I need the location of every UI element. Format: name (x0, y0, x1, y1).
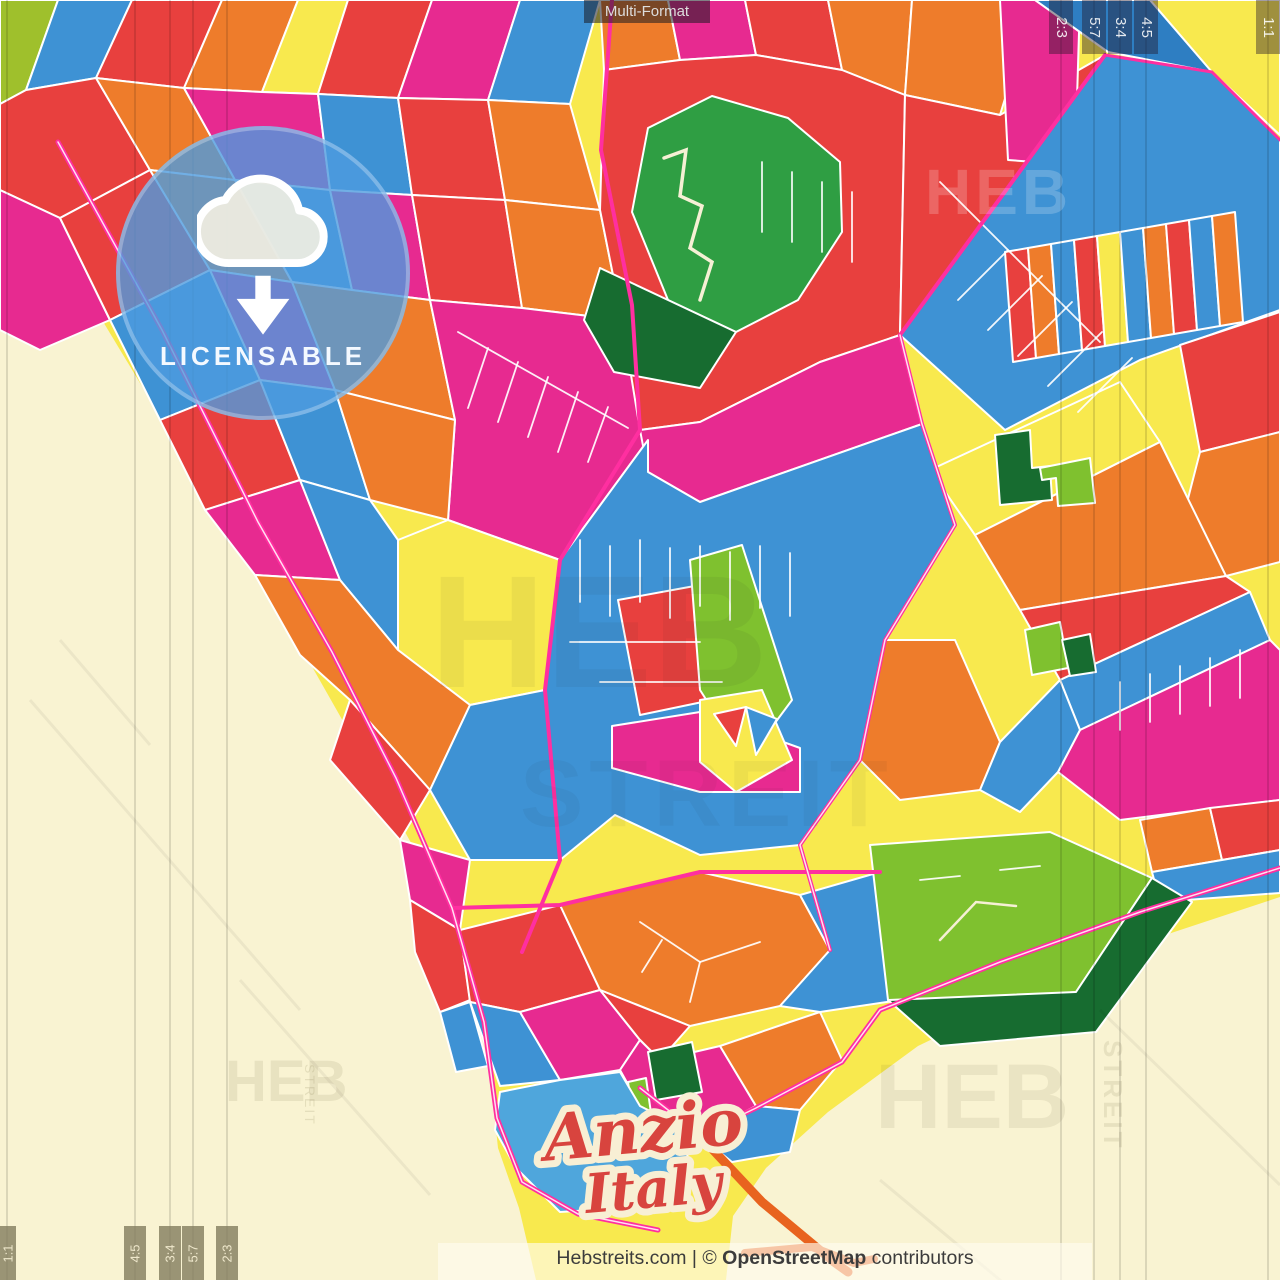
ratio-label: 1:1 (1259, 17, 1276, 38)
footer-credit: Hebstreits.com | © OpenStreetMap contrib… (438, 1247, 1092, 1270)
ratio-mark-3-4: 3:4 (1108, 0, 1132, 54)
ratio-label: 4:5 (1137, 17, 1154, 38)
licensable-badge: LICENSABLE (116, 126, 410, 420)
ratio-mark-3-4: 3:4 (159, 1226, 181, 1280)
ratio-label: 2:3 (1052, 17, 1069, 38)
ratio-mark-2-3: 2:3 (1049, 0, 1073, 54)
footer-prefix: Hebstreits.com | © (556, 1247, 722, 1269)
ratio-label: 5:7 (185, 1244, 200, 1262)
footer-suffix: contributors (866, 1247, 973, 1269)
map-poster: Anzio Italy HEB STREIT HEB HEB STREIT HE… (0, 0, 1280, 1280)
ratio-label: 5:7 (1085, 17, 1102, 38)
ratio-mark-1-1: 1:1 (0, 1226, 16, 1280)
ratio-label: 3:4 (1111, 17, 1128, 38)
ratio-mark-4-5: 4:5 (1134, 0, 1158, 54)
ratio-mark-1-1: 1:1 (1256, 0, 1280, 54)
ratio-mark-5-7: 5:7 (1082, 0, 1106, 54)
ratio-label: 1:1 (1, 1244, 16, 1262)
ratio-label: 4:5 (127, 1244, 142, 1262)
city-title-line2: Italy (580, 1150, 728, 1226)
ratio-label: 2:3 (219, 1244, 234, 1262)
ratio-label: 3:4 (162, 1244, 177, 1262)
ratio-mark-5-7: 5:7 (182, 1226, 204, 1280)
format-tag: Multi-Format (584, 0, 710, 23)
licensable-label: LICENSABLE (160, 341, 366, 372)
footer-osm: OpenStreetMap (722, 1247, 866, 1269)
cloud-download-icon (197, 152, 329, 339)
ratio-mark-4-5: 4:5 (124, 1226, 146, 1280)
ratio-mark-2-3: 2:3 (216, 1226, 238, 1280)
